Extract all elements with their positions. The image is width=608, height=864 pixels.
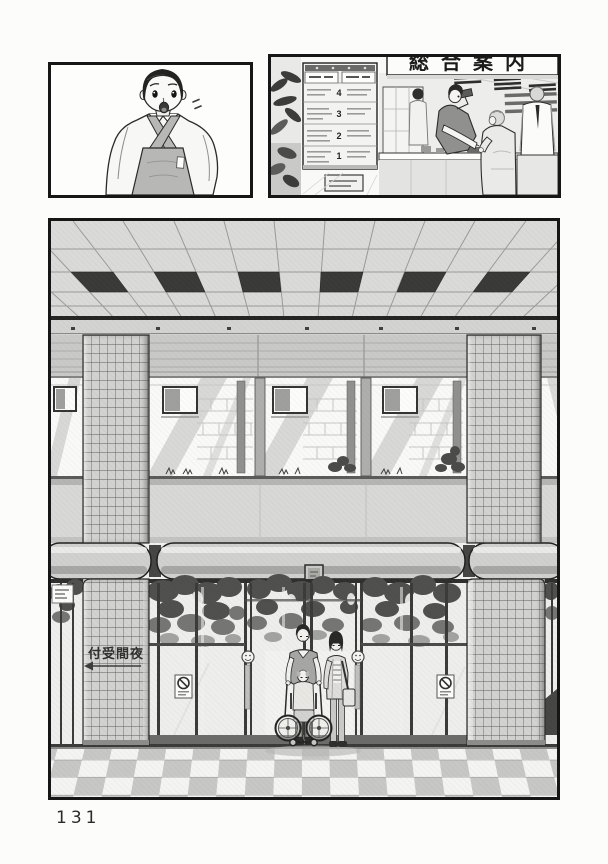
general-information-sign: 総合案内 xyxy=(387,57,558,79)
left-arrow-icon xyxy=(84,662,141,671)
page-number: 131 xyxy=(56,808,100,828)
entrance-overlay: 付受間夜 xyxy=(51,221,557,797)
svg-text:3: 3 xyxy=(336,109,341,119)
clerk-head xyxy=(140,69,186,113)
panel-clerk-closeup xyxy=(48,62,253,198)
wheelchair-user-figure xyxy=(276,670,332,746)
surprise-marks-icon xyxy=(193,100,201,109)
shoulder-bag xyxy=(343,689,355,706)
reception-glass-sign: 付受間夜 xyxy=(84,646,144,671)
reception-sign-text: 付受間夜 xyxy=(88,646,144,661)
counter-drawing: 総合案内 xyxy=(271,57,558,195)
clerk-figure xyxy=(106,69,218,195)
group-shadow xyxy=(265,746,361,757)
clerk-drawing xyxy=(51,65,250,195)
svg-text:4: 4 xyxy=(336,88,341,98)
floor-directory-board: 4 3 2 1 xyxy=(303,63,377,169)
svg-text:1: 1 xyxy=(336,151,341,161)
sign-text: 総合案内 xyxy=(409,57,537,74)
svg-text:2: 2 xyxy=(336,131,341,141)
panel-hospital-entrance: 付受間夜 xyxy=(48,218,560,800)
manga-page: { "page": { "number": "131" }, "colors":… xyxy=(0,0,608,864)
entrance-people xyxy=(265,624,361,757)
panel-information-counter: 総合案内 xyxy=(268,54,561,198)
